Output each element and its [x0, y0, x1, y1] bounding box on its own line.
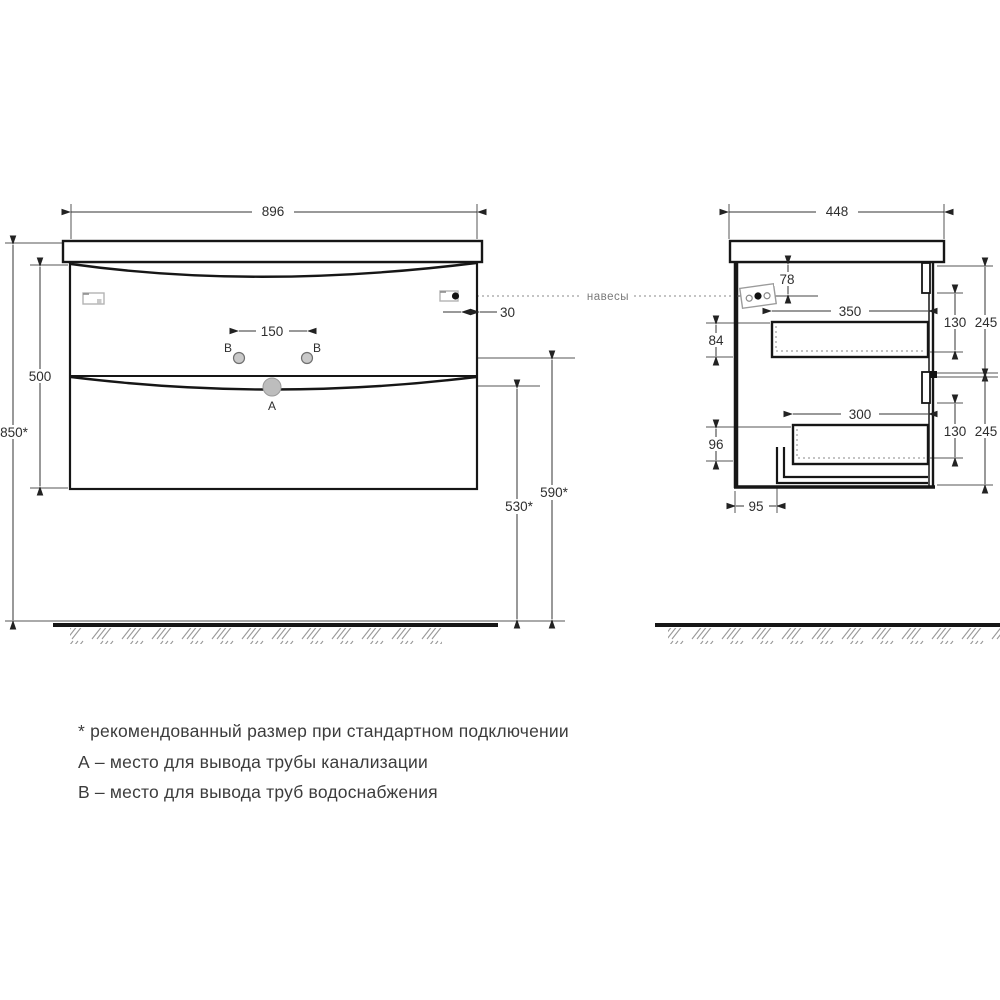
- technical-drawing-page: 896 500 850* 150 30 590* 530* B B A наве…: [0, 0, 1000, 1000]
- label-b-right: B: [313, 341, 321, 355]
- water-point-b-left: [234, 353, 245, 364]
- dim-top-drawer-width: 350: [839, 304, 862, 319]
- dim-side-width: 448: [826, 204, 849, 219]
- front-countertop: [63, 241, 482, 262]
- legend: * рекомендованный размер при стандартном…: [78, 716, 569, 808]
- dim-water-height: 590*: [540, 485, 569, 500]
- dim-bottom-drawer-width: 300: [849, 407, 872, 422]
- dim-water-spacing: 150: [261, 324, 284, 339]
- side-countertop: [730, 241, 944, 262]
- dim-drain-height: 530*: [505, 499, 534, 514]
- dim-top-left-gap: 84: [708, 333, 724, 348]
- legend-note-recommended-size: * рекомендованный размер при стандартном…: [78, 716, 569, 747]
- dim-top-zone-height: 245: [975, 315, 998, 330]
- floor-hatching-front: [70, 628, 442, 644]
- side-hanger-bracket: [740, 284, 776, 309]
- dim-hanger-top: 78: [779, 272, 794, 287]
- dim-front-width: 896: [262, 204, 285, 219]
- dim-bottom-zone-height: 245: [975, 424, 998, 439]
- label-b-left: B: [224, 341, 232, 355]
- legend-note-a-drain: А – место для вывода трубы канализации: [78, 747, 569, 778]
- dim-recess-offset: 95: [748, 499, 763, 514]
- front-view: 896 500 850* 150 30 590* 530* B B A: [0, 204, 750, 644]
- side-view: 448 78 350 84 130 245 300 96 130 245 95: [655, 204, 1000, 644]
- dim-bottom-left-gap: 96: [708, 437, 723, 452]
- hangers-label: навесы: [587, 291, 629, 303]
- front-left-hanger-icon: [83, 293, 104, 304]
- front-right-hanger-icon: [440, 291, 459, 301]
- dim-total-height: 850*: [0, 425, 29, 440]
- dim-hanger-offset: 30: [500, 305, 515, 320]
- dim-cabinet-height: 500: [29, 369, 52, 384]
- side-bottom-drawer-front-bracket: [922, 372, 930, 403]
- vanity-dimension-drawing: 896 500 850* 150 30 590* 530* B B A наве…: [0, 0, 1000, 1000]
- dim-top-drawer-height: 130: [944, 315, 967, 330]
- side-top-drawer-box: [772, 322, 928, 357]
- side-top-drawer-front-bracket: [922, 263, 930, 293]
- legend-note-b-water: В – место для вывода труб водоснабжения: [78, 777, 569, 808]
- label-a: A: [268, 399, 276, 413]
- drain-point-a: [263, 378, 281, 396]
- water-point-b-right: [302, 353, 313, 364]
- dim-bottom-drawer-height: 130: [944, 424, 967, 439]
- floor-hatching-side: [668, 628, 1000, 644]
